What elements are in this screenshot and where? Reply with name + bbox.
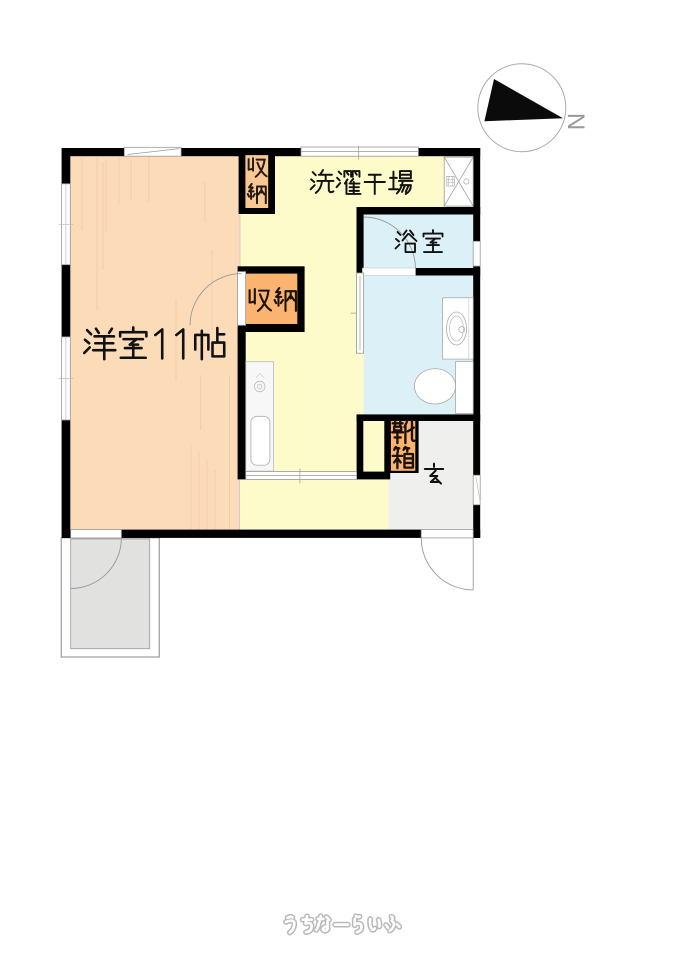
svg-text:N: N <box>562 113 589 130</box>
